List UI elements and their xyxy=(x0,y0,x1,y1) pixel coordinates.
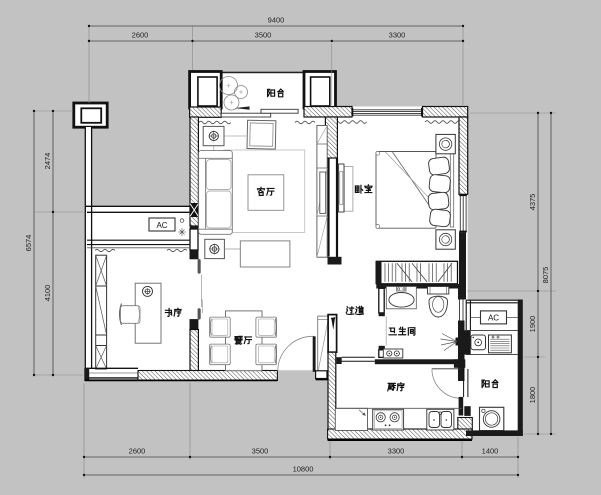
svg-text:2600: 2600 xyxy=(132,31,149,40)
svg-text:8075: 8075 xyxy=(541,267,550,284)
svg-text:3300: 3300 xyxy=(388,447,405,456)
svg-text:10800: 10800 xyxy=(293,465,314,474)
svg-text:9400: 9400 xyxy=(268,16,285,25)
svg-text:6574: 6574 xyxy=(24,235,33,252)
svg-text:4100: 4100 xyxy=(43,285,52,302)
svg-text:1400: 1400 xyxy=(482,447,499,456)
svg-text:AC: AC xyxy=(156,221,167,230)
svg-text:AC: AC xyxy=(488,314,499,323)
svg-text:3500: 3500 xyxy=(255,31,272,40)
svg-text:1800: 1800 xyxy=(528,387,537,404)
svg-text:4375: 4375 xyxy=(528,194,537,211)
svg-text:2474: 2474 xyxy=(43,153,52,170)
svg-text:3500: 3500 xyxy=(252,447,269,456)
svg-text:2600: 2600 xyxy=(129,447,146,456)
svg-text:1900: 1900 xyxy=(528,316,537,333)
svg-text:3300: 3300 xyxy=(389,31,406,40)
